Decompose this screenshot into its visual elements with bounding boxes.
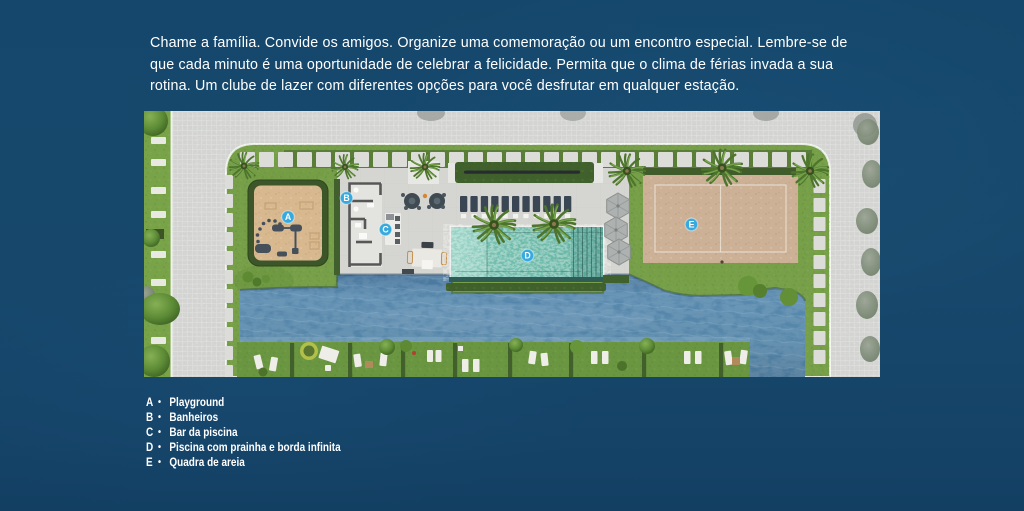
- svg-text:B: B: [343, 193, 349, 203]
- svg-text:C: C: [382, 225, 389, 235]
- svg-text:D: D: [524, 251, 530, 261]
- svg-text:E: E: [689, 220, 695, 230]
- svg-text:A: A: [285, 212, 292, 222]
